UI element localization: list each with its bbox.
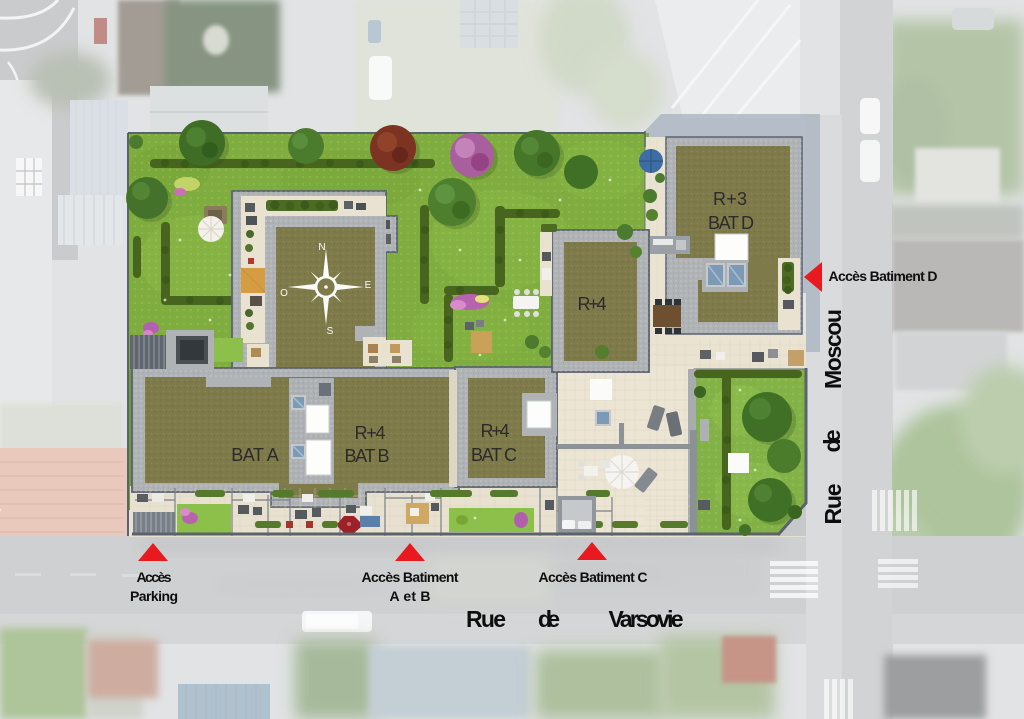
svg-text:Rue: Rue — [820, 484, 846, 525]
svg-text:BAT D: BAT D — [708, 213, 754, 233]
svg-text:Accès Batiment D: Accès Batiment D — [829, 268, 938, 284]
svg-text:Moscou: Moscou — [820, 309, 846, 389]
svg-text:Accès: Accès — [137, 569, 172, 585]
svg-text:Accès Batiment C: Accès Batiment C — [539, 569, 648, 585]
svg-text:R+4: R+4 — [578, 294, 607, 314]
svg-text:BAT A: BAT A — [231, 445, 279, 465]
svg-text:R+4: R+4 — [355, 423, 386, 443]
svg-text:BAT C: BAT C — [471, 445, 517, 465]
svg-text:R+3: R+3 — [713, 189, 747, 209]
svg-text:BAT B: BAT B — [345, 446, 390, 466]
svg-text:R+4: R+4 — [481, 421, 510, 441]
svg-text:Varsovie: Varsovie — [609, 606, 684, 632]
svg-text:A et B: A et B — [390, 588, 431, 604]
svg-text:E: E — [365, 280, 372, 291]
svg-text:N: N — [318, 242, 325, 253]
svg-text:Rue: Rue — [466, 606, 506, 632]
svg-text:O: O — [280, 288, 288, 299]
svg-text:de: de — [538, 606, 560, 632]
svg-text:de: de — [819, 430, 845, 453]
svg-text:Parking: Parking — [130, 588, 178, 604]
svg-text:S: S — [327, 326, 334, 337]
svg-text:Accès Batiment: Accès Batiment — [362, 569, 459, 585]
